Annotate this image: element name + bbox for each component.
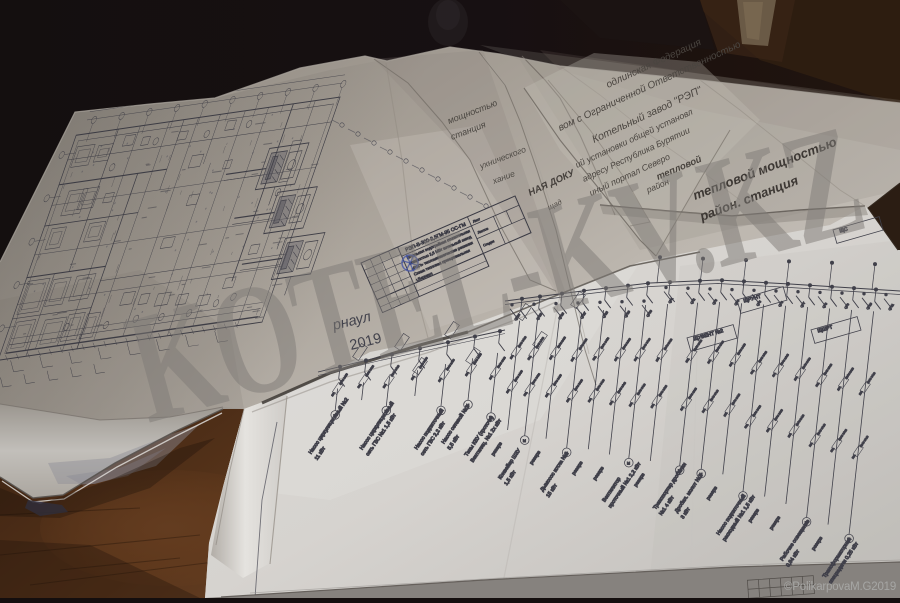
svg-text:М: М bbox=[523, 439, 526, 443]
svg-text:М: М bbox=[627, 462, 630, 466]
svg-text:©PolikarpovaM.G2019: ©PolikarpovaM.G2019 bbox=[784, 581, 896, 593]
